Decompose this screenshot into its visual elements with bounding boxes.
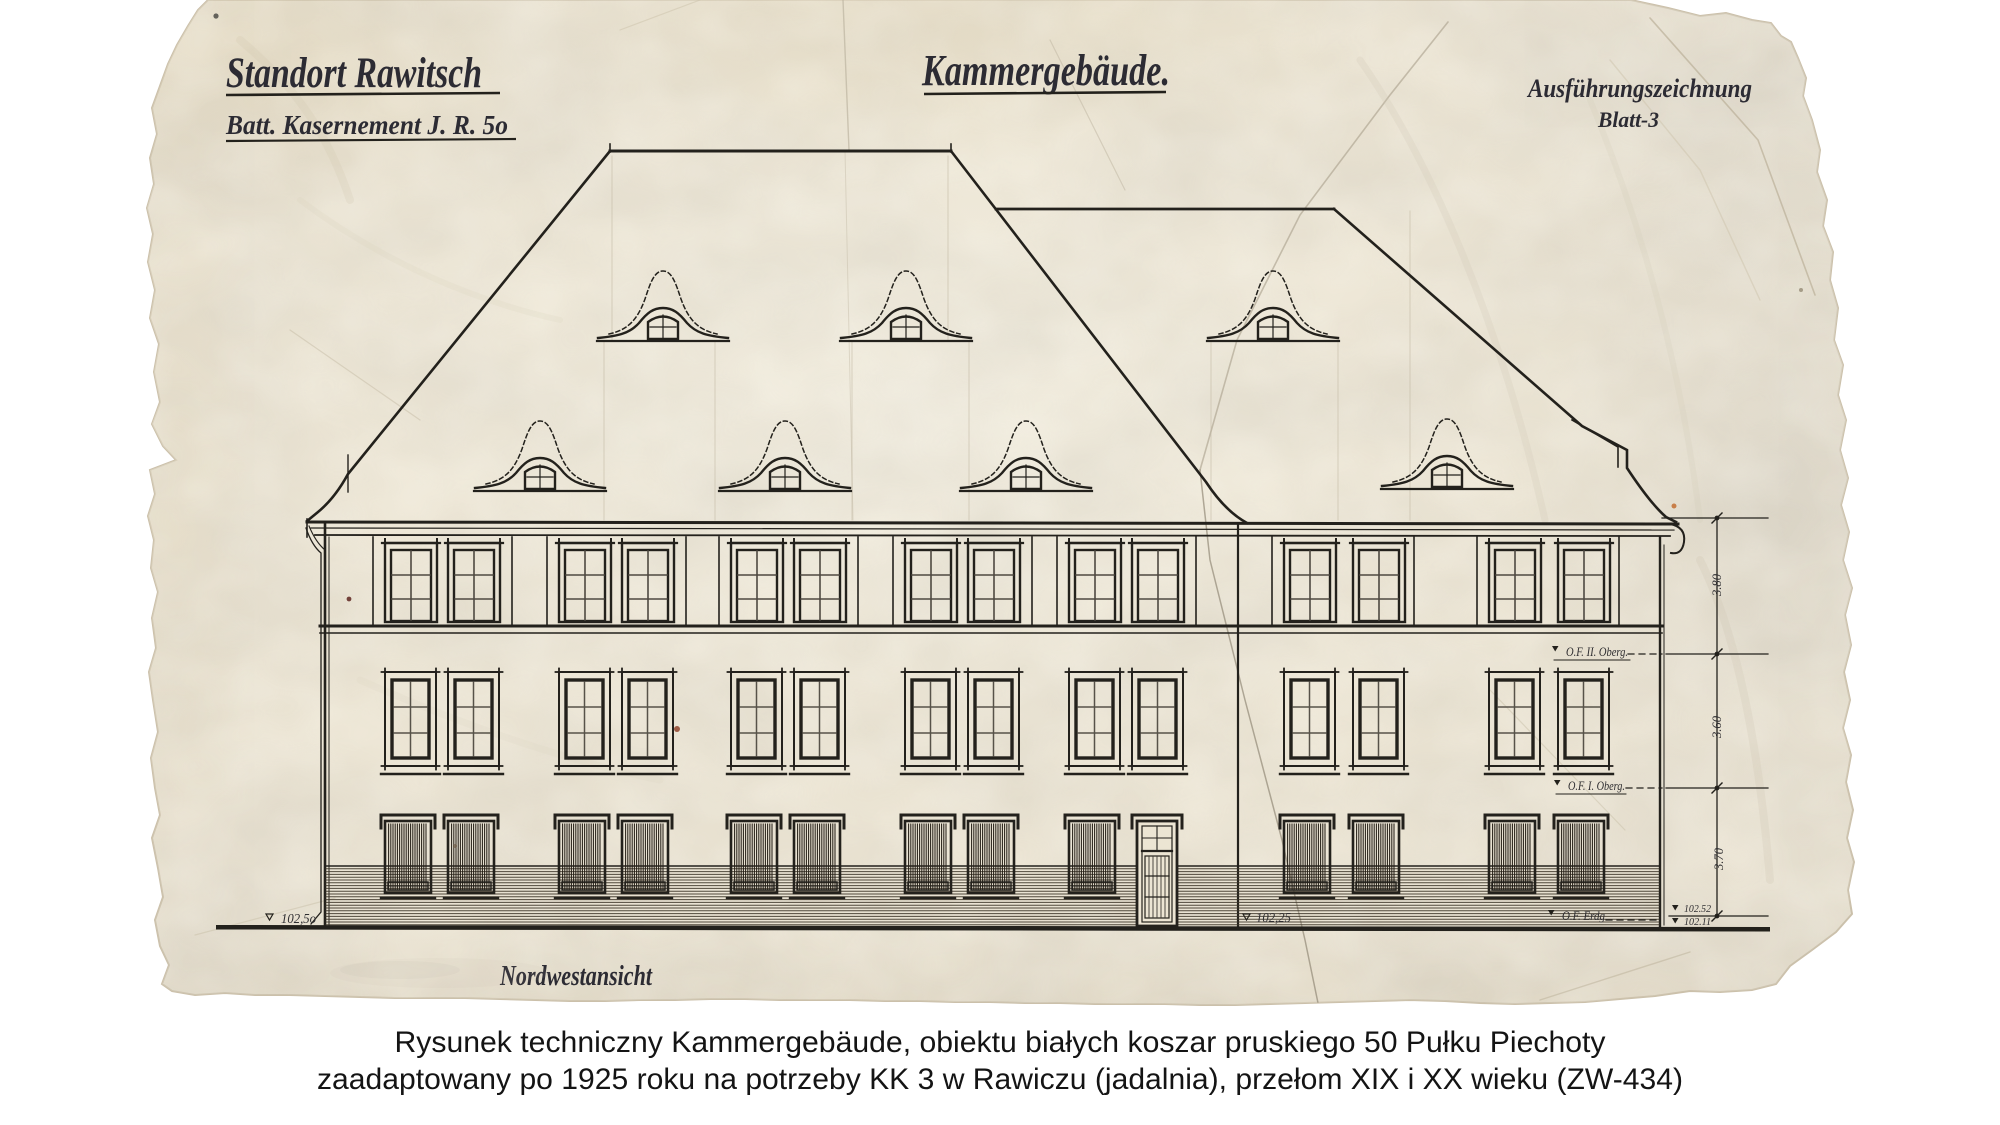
svg-text:102,5o: 102,5o <box>281 912 316 927</box>
svg-text:Ausführungszeichnung: Ausführungszeichnung <box>1526 74 1752 103</box>
svg-text:O.F. I. Oberg.: O.F. I. Oberg. <box>1568 779 1625 793</box>
svg-text:102.11: 102.11 <box>1684 916 1711 928</box>
svg-text:Standort Rawitsch: Standort Rawitsch <box>226 50 482 97</box>
svg-text:O.F. II. Oberg.: O.F. II. Oberg. <box>1566 645 1628 659</box>
svg-text:O.F. Erdg: O.F. Erdg <box>1562 909 1605 923</box>
svg-text:Rysunek techniczny Kammergebäu: Rysunek techniczny Kammergebäude, obiekt… <box>395 1026 1606 1059</box>
svg-text:3.80: 3.80 <box>1709 574 1724 597</box>
svg-text:Blatt-3: Blatt-3 <box>1597 107 1659 132</box>
svg-text:3.60: 3.60 <box>1709 716 1724 739</box>
svg-text:3.70: 3.70 <box>1711 848 1726 871</box>
svg-text:zaadaptowany po 1925 roku na p: zaadaptowany po 1925 roku na potrzeby KK… <box>317 1063 1683 1096</box>
svg-text:102,25: 102,25 <box>1256 911 1291 926</box>
svg-text:102.52: 102.52 <box>1684 903 1711 915</box>
svg-text:Kammergebäude.: Kammergebäude. <box>921 46 1170 95</box>
svg-text:Batt. Kasernement J. R. 5o: Batt. Kasernement J. R. 5o <box>225 110 508 140</box>
